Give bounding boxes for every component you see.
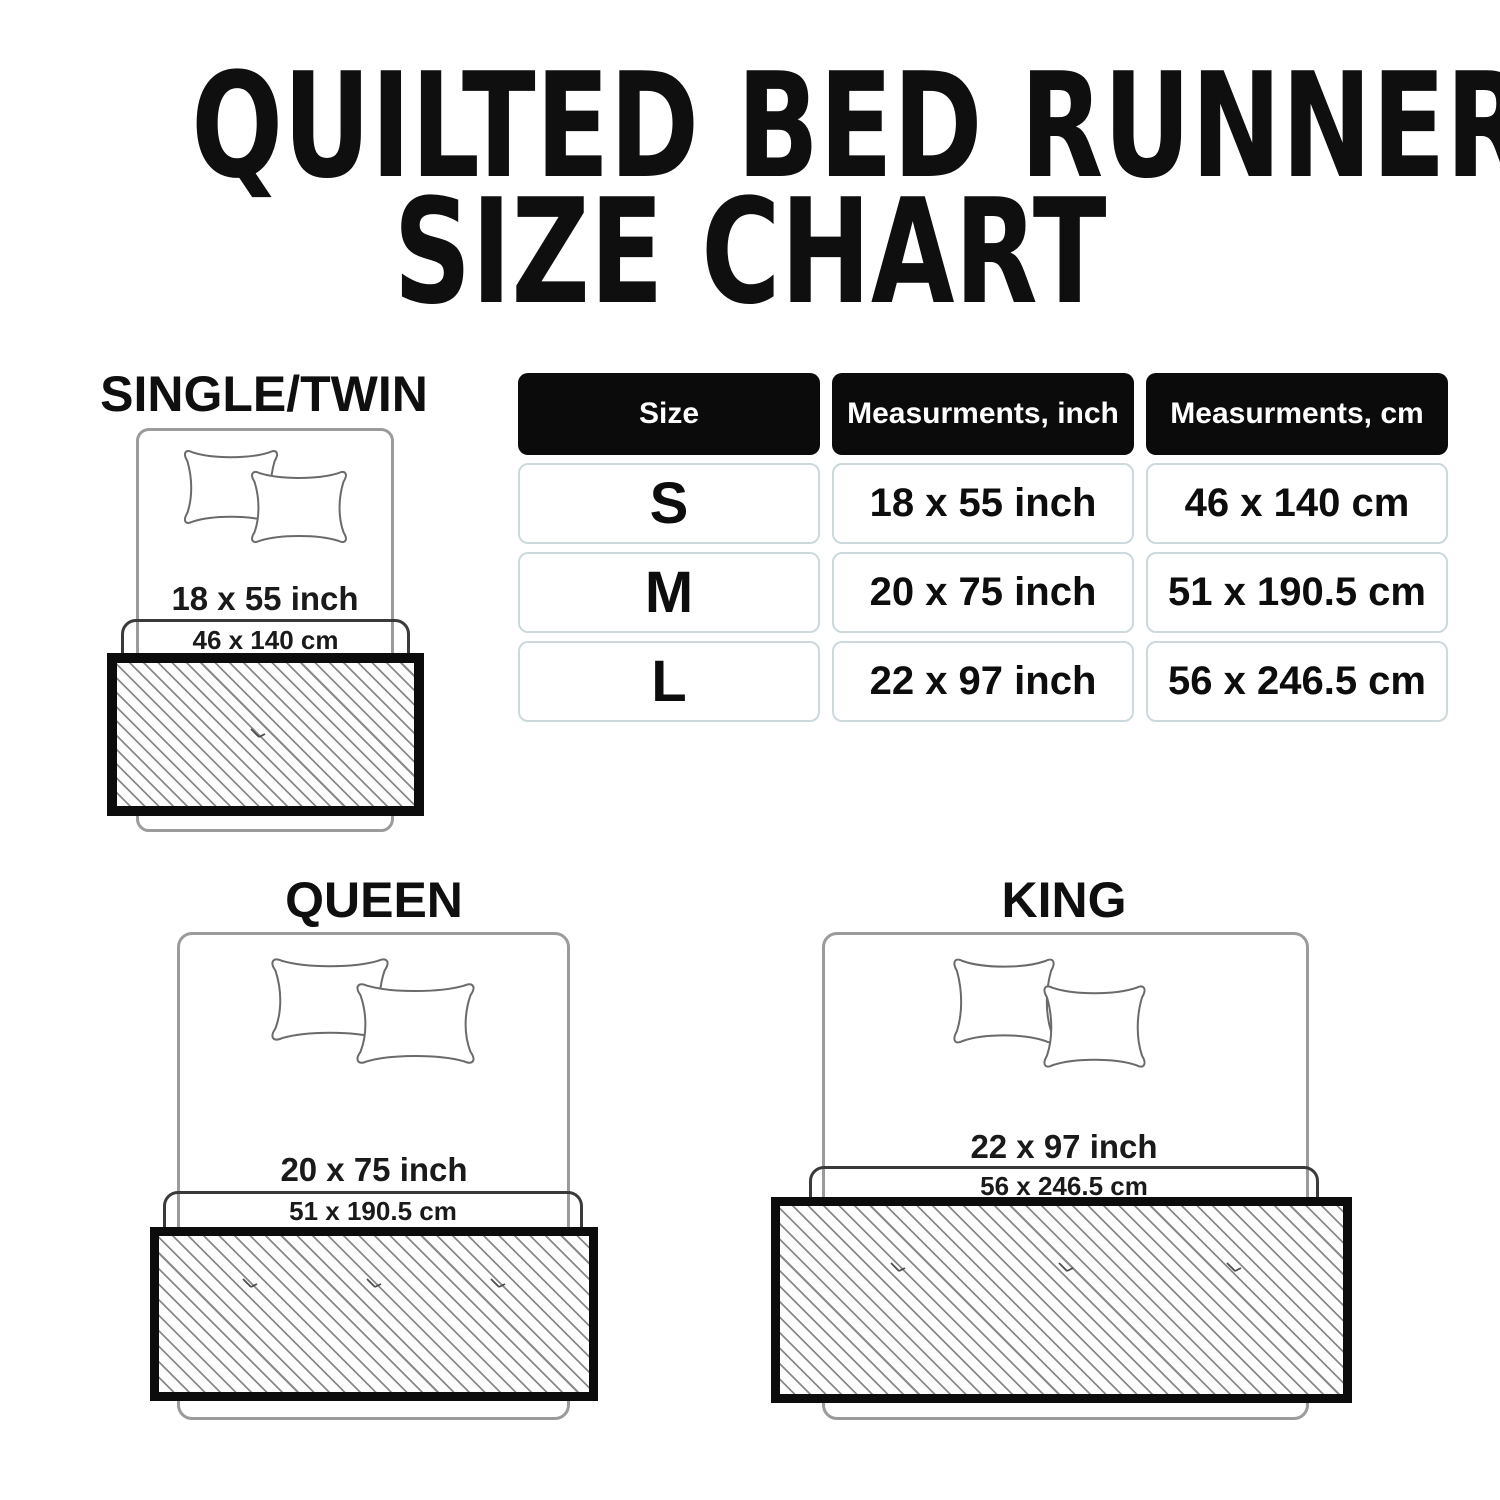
quilt-stitch-mark: [1058, 1262, 1074, 1274]
table-cell-inch-s: 18 x 55 inch: [832, 463, 1134, 544]
table-header-size: Size: [518, 373, 820, 455]
diagram-label-king: KING: [914, 874, 1214, 926]
table-cell-cm-s: 46 x 140 cm: [1146, 463, 1448, 544]
table-cell-inch-m: 20 x 75 inch: [832, 552, 1134, 633]
table-cell-inch-l: 22 x 97 inch: [832, 641, 1134, 722]
inch-measurement-king: 22 x 97 inch: [855, 1128, 1273, 1166]
quilted-runner-queen: [150, 1227, 598, 1401]
quilt-stitch-mark: [890, 1262, 906, 1274]
table-cell-size-l: L: [518, 641, 820, 722]
inch-measurement-queen: 20 x 75 inch: [165, 1151, 583, 1189]
quilt-stitch-mark: [366, 1278, 382, 1290]
table-cell-cm-l: 56 x 246.5 cm: [1146, 641, 1448, 722]
diagram-label-single-twin: SINGLE/TWIN: [99, 368, 429, 420]
size-table: Size Measurments, inch Measurments, cm S…: [518, 373, 1448, 722]
table-cell-size-m: M: [518, 552, 820, 633]
cm-measurement-single-twin: 46 x 140 cm: [121, 625, 410, 655]
table-cell-size-s: S: [518, 463, 820, 544]
inch-measurement-single-twin: 18 x 55 inch: [134, 580, 396, 618]
quilt-stitch-mark: [490, 1278, 506, 1290]
quilt-stitch-mark: [1226, 1262, 1242, 1274]
pillow-icon: [1038, 983, 1151, 1070]
page-title: QUILTED BED RUNNER SIZE CHART: [191, 64, 1309, 316]
diagram-label-queen: QUEEN: [224, 874, 524, 926]
pillow-icon: [246, 469, 352, 545]
quilt-stitch-mark: [242, 1278, 258, 1290]
table-header-inch: Measurments, inch: [832, 373, 1134, 455]
quilt-stitch-mark: [250, 728, 266, 740]
size-chart-page: QUILTED BED RUNNER SIZE CHART Size Measu…: [0, 0, 1500, 1500]
cm-measurement-queen: 51 x 190.5 cm: [163, 1196, 583, 1226]
table-header-cm: Measurments, cm: [1146, 373, 1448, 455]
pillow-icon: [350, 981, 481, 1066]
table-cell-cm-m: 51 x 190.5 cm: [1146, 552, 1448, 633]
quilted-runner-king: [771, 1197, 1352, 1403]
